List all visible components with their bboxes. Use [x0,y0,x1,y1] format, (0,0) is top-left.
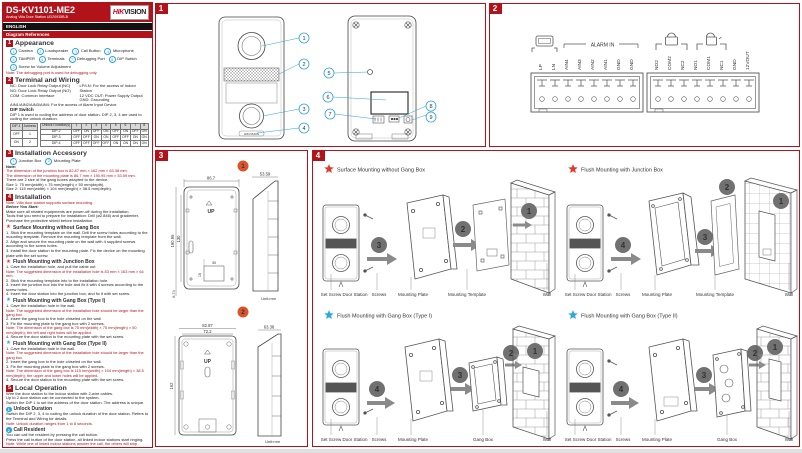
list-item: 3Call Button [72,48,100,55]
step-number: 2 [461,225,466,234]
dim-width-outer: 82.87 [202,323,213,328]
hikvision-logo: HIKVISION [110,5,149,20]
section-appearance-head: 1 Appearance [6,40,149,47]
part-label: Wall [785,437,794,442]
part-labels: Set Screw Door Station Screws Mounting P… [321,437,552,442]
part-label: Mounting Template [696,292,734,297]
step-number: 4 [375,385,380,394]
wall-brick [511,180,555,293]
diagram-flush-junction-box: Flush Mounting with Junction Box 4 [559,153,799,304]
list-item: 2Mounting Plate [45,158,80,165]
operation-note: Note: While one of linked indoor station… [6,442,149,448]
part-label: Set Screw [565,437,586,442]
step-number: 3 [703,233,708,242]
step-1: 1 [773,193,789,209]
rear-callout-lines [333,72,426,120]
dip-tables: DIP-1Address OFF1 ON2 Unlock Duration(s)… [10,123,149,147]
part-label: Wall [543,292,552,297]
dim-lines-d1 [176,177,278,296]
step-1: 1 [767,339,783,355]
terminal-label: GND [616,59,622,70]
part-label: Gang Box [717,437,738,442]
item-number: 3 [72,48,79,55]
step-number: 2 [725,183,730,192]
step-number: 3 [702,371,707,380]
row-header: DIP-4 [41,141,72,147]
terminal-label: NC1 [719,60,725,70]
front-callouts: 1 2 3 4 [299,33,309,133]
part-label: Mounting Template [448,292,486,297]
callout-call-button: 3 [302,107,305,113]
item-label: Debugging Port [77,57,105,62]
terminal-label: AIN3 [577,59,583,70]
callout-tamper: 5 [327,71,330,77]
door-station-mini [567,205,603,287]
region-tab: 1 [155,3,168,14]
step-2: 2 [719,179,735,195]
gang-box-3d [469,357,507,411]
dim-slot-width: 30 [212,261,216,265]
mounting-plate-3d [407,195,457,279]
part-label: Mounting Plate [642,292,673,297]
terminal-label: LP [538,64,544,70]
part-label: Door Station [586,292,612,297]
loudspeaker-grille [224,68,279,81]
diagram-title: Flush Mounting with Junction Box [581,168,663,174]
cell: ON [111,141,121,147]
operation-note: Note: Unlock duration ranges from 1 to 8… [6,422,149,426]
item-number: 2 [45,158,52,165]
step-number: 1 [533,347,538,356]
cell: 2 [22,139,37,147]
list-item: 4Microphone [104,48,133,55]
logo-vision-text: VISION [124,9,146,16]
door-station-mini [323,205,359,287]
item-label: Junction Box [19,159,42,164]
surface-mounting-svg: Surface Mounting without Gang Box 3 [315,153,557,299]
cell: OFF [11,131,23,139]
terminal-col2: LP/LN: For the access of Indoor Station … [80,84,150,102]
left-text-column: DS-KV1101-ME2 Analog Villa Door Station … [2,2,153,448]
dimension-drawings-svg: 1 UP 30 15 [156,151,306,445]
item-label: Loudspeaker [45,49,68,54]
dim-width-inner: 72.2 [203,329,212,334]
cell: 1 [22,131,37,139]
item-label: TAMPER [19,57,35,62]
method-step: 4. Insert the door station into the junc… [6,292,149,297]
dip-switch-desc: DIP 1 is used to coding the address of d… [10,113,149,122]
model-subtitle: Analog Villa Door Station UD20935B-B [6,15,75,19]
gang-box-3d [713,349,751,417]
region-dimension-drawings: 3 1 UP 30 15 [155,150,308,447]
dim-slot-height: 15 [198,273,202,277]
diagram-references-bar: Diagram References [3,31,152,38]
local-intro-line: Switch the DIP 1 to set the address of t… [6,401,149,406]
part-labels: Set Screw Door Station Screws Mounting P… [565,437,794,442]
screws-icon [364,409,373,414]
step-4-arrow: 4 [611,381,639,409]
star-icon [568,164,578,173]
indoor-station-icon [532,36,557,52]
diagram-title: Flush Mounting with Gang Box (Type I) [337,314,432,320]
terminal-label: LN [551,63,557,70]
terminal-label: AIN2 [590,59,596,70]
tamper-hole [368,70,373,75]
terminal-label: AIN4 [564,59,570,70]
door-lock-icon [697,33,726,50]
dim-height-outer: 190.95 [170,234,175,247]
appearance-diagram-svg: HIKVISION 1 2 3 4 [156,4,484,145]
list-item: 6Terminals [39,56,65,63]
accessory-items: 1Junction Box 2Mounting Plate [10,158,149,165]
cell: OFF [101,141,111,147]
wall-hole [769,359,781,401]
model-title: DS-KV1101-ME2 [6,6,75,15]
before-item: Purchase the protective shield before in… [6,219,149,224]
step-number: 3 [377,241,382,250]
item-label: Camera [19,49,33,54]
unit-label: Unit:mm [265,439,281,444]
door-station-mini [323,349,359,431]
wall-hole [759,211,775,261]
section-appearance: 1 Appearance 1Camera 2Loudspeaker 3Call … [3,38,152,75]
part-label: Mounting Plate [398,292,429,297]
page-bottom-margin [0,449,802,453]
method-step: 4. Secure the door station to the mounti… [6,335,149,340]
step-4-arrow: 4 [367,381,395,409]
terminal-label: COM2 [667,56,673,70]
part-label: Set Screw [321,437,342,442]
item-number: 6 [39,56,46,63]
mounting-plate-3d [649,339,697,421]
cell: OFF [72,141,82,147]
part-label: Mounting Plate [642,437,673,442]
section-number: 3 [6,150,13,157]
star-icon [568,310,578,319]
region-tab: 2 [489,3,502,14]
diagram-gang-box-type2: Flush Mounting with Gang Box (Type II) 4 [559,301,799,450]
up-label: UP [208,209,216,215]
col-header: Address [22,123,37,131]
list-item: 7Debugging Port [69,56,105,63]
section-accessory-head: 3 Installation Accessory [6,150,149,157]
gang-box-type1-svg: Flush Mounting with Gang Box (Type I) 4 [315,301,557,445]
item-number: 8 [109,56,116,63]
step-number: 1 [779,197,784,206]
gang-box-type2-svg: Flush Mounting with Gang Box (Type II) 4 [559,301,799,445]
terminal-def: COM: Common Interface [10,94,80,99]
step-number: 4 [619,385,624,394]
callout-dip-switch: 8 [429,104,432,110]
cell: ON [130,141,140,147]
step-number: 1 [773,343,778,352]
section-number: 1 [6,40,13,47]
dim-width: 86.7 [207,176,216,181]
part-label: Screws [372,292,388,297]
section-terminal-wiring: 2 Terminal and Wiring NC: Door Lock Rela… [3,75,152,146]
cell: OFF [81,141,91,147]
document-header: DS-KV1101-ME2 Analog Villa Door Station … [3,2,152,22]
mounting-template [473,199,509,271]
terminal-label: AIN1 [603,59,609,70]
header-titles: DS-KV1101-ME2 Analog Villa Door Station … [6,6,75,19]
callout-debugging-port: 7 [328,112,331,118]
part-label: Screws [372,437,388,442]
item-number: 7 [69,56,76,63]
terminal-label: COM1 [706,56,712,70]
door-station-mini [567,349,603,431]
region-terminal-wiring-diagram: 2 ALARM IN [489,3,800,147]
dim-bottom: 6.74 [172,290,176,297]
region-appearance-diagrams: 1 HIKVISION [155,3,486,147]
method-step: 3. Install the door station to the mount… [6,249,149,258]
item-number: 2 [37,48,44,55]
callout-camera: 1 [302,36,305,42]
mounting-template-frame [711,195,739,275]
part-label: Set Screw [321,292,342,297]
item-label: Mounting Plate [54,159,81,164]
list-item: 5TAMPER [10,56,35,63]
step-4-arrow: 4 [611,237,641,265]
terminal-block1 [531,73,643,112]
wall-tile [745,178,797,293]
junction-box-side-drawing [258,334,281,436]
logo-hik-text: HIK [113,9,124,16]
dim-side: 63.38 [264,325,275,330]
step-number: 4 [621,241,626,250]
cell: ON [121,141,131,147]
terminal-label: GND [732,59,738,70]
part-label: Wall [543,437,552,442]
section-installation: 4 Installation Note: Villa door station … [3,192,152,383]
language-bar: ENGLISH [3,23,152,30]
region-installation-diagrams: 4 Surface Mounting without Gang Box [312,150,800,447]
wall-brick [513,326,555,439]
terminal-label: GND [629,59,635,70]
star-icon [324,164,334,173]
item-label: Microphone [113,49,134,54]
part-label: Screws [616,437,632,442]
cell: OFF [91,141,101,147]
item-label: Terminals [47,57,64,62]
dip-address-table: DIP-1Address OFF1 ON2 [10,123,38,147]
diagram-surface-mounting: Surface Mounting without Gang Box 3 [315,153,557,304]
junction-box-3d [649,193,699,275]
mounting-plate-front-drawing [184,187,239,289]
step-number: 1 [527,207,532,216]
mounting-plate-side-drawing [253,181,278,291]
terminal-block1-labels: LP LN AIN4 AIN3 AIN2 AIN1 GND GND [538,59,635,70]
item-label: Call Button [81,49,101,54]
terminal-label: NO2 [654,60,660,70]
alarm-in-label: ALARM IN [591,43,615,49]
terminal-label: NC2 [680,60,686,70]
terminal-label: 12VOUT [745,51,751,70]
dim-height-inner: 130 [176,235,181,243]
terminal-label: NO1 [693,60,699,70]
part-label: Wall [785,292,794,297]
front-brand-text: HIKVISION [244,132,259,136]
part-labels: Set Screw Door Station Screws Mounting P… [321,292,552,297]
dim-height: 162 [169,382,174,390]
junction-box-front-drawing [179,336,236,435]
door-station-rear-view [348,16,416,141]
part-label: Mounting Plate [398,437,429,442]
diagram-title: Flush Mounting with Gang Box (Type II) [581,314,678,320]
section-installation-accessory: 3 Installation Accessory 1Junction Box 2… [3,148,152,192]
callout-loudspeaker: 2 [302,62,305,68]
list-item: 2Loudspeaker [37,48,69,55]
terminal-definitions: NC: Door Lock Relay Output (NC) NO: Door… [10,84,149,102]
mounting-plate-3d [405,339,453,421]
col-header: DIP-1 [11,123,23,131]
terminal-block2 [647,73,759,112]
terminal-block2-labels: NO2 COM2 NC2 NO1 COM1 NC1 GND 12VOUT [654,51,751,70]
part-label: Screws [616,292,632,297]
door-lock-icon [656,33,687,50]
step-1: 1 [527,343,543,359]
diagram-gang-box-type1: Flush Mounting with Gang Box (Type I) 4 [315,301,557,450]
dim-lines-d2 [175,329,281,436]
item-number: 5 [10,56,17,63]
callout-volume-screw: 9 [429,115,432,121]
section-title: Installation Accessory [15,150,87,157]
terminal-col1: NC: Door Lock Relay Output (NC) NO: Door… [10,84,80,102]
flush-junction-svg: Flush Mounting with Junction Box 4 [559,153,799,299]
dip-duration-table: Unlock Duration(s) 1 2 3 4 5 6 7 8 DIP-2… [40,123,149,147]
corner-screw-icon [353,22,411,135]
region-tab: 3 [155,150,168,161]
star-icon [324,310,334,319]
part-label: Door Station [586,437,612,442]
list-item: 1Camera [10,48,33,55]
terminal-panel [371,92,408,114]
volume-screw [404,116,412,123]
up-label: UP [204,359,212,365]
cell: ON [11,139,23,147]
cell: ON [140,141,148,147]
wall-hole [523,367,539,397]
dip-switch-block [373,116,384,123]
part-labels: Set Screw Door Station Screws Mounting P… [565,292,794,297]
section-title: Appearance [15,40,54,47]
step-number: 3 [458,371,463,380]
unit-label: Unit:mm [261,296,277,301]
item-label: DIP Switch [117,57,137,62]
section-local-operation: 5 Local Operation Wire the door station … [3,383,152,448]
appearance-items: 1Camera 2Loudspeaker 3Call Button 4Micro… [10,48,149,71]
step-3-arrow: 3 [367,237,397,265]
terminal-wiring-svg: ALARM IN LP LN AIN4 AIN3 AIN2 AIN1 [490,4,798,145]
dim-side: 53.59 [260,172,271,177]
callout-microphone: 4 [302,126,305,132]
part-label: Set Screw [565,292,586,297]
item-number: 4 [104,48,111,55]
part-label: Door Station [342,292,368,297]
part-label: Gang Box [473,437,494,442]
callout-terminals: 6 [326,95,329,101]
diagram-title: Surface Mounting without Gang Box [337,168,425,174]
list-item: 8DIP Switch [109,56,137,63]
quick-start-guide-page: DS-KV1101-ME2 Analog Villa Door Station … [0,0,802,453]
item-number: 1 [10,48,17,55]
door-station-front-view [219,17,284,139]
part-label: Door Station [342,437,368,442]
